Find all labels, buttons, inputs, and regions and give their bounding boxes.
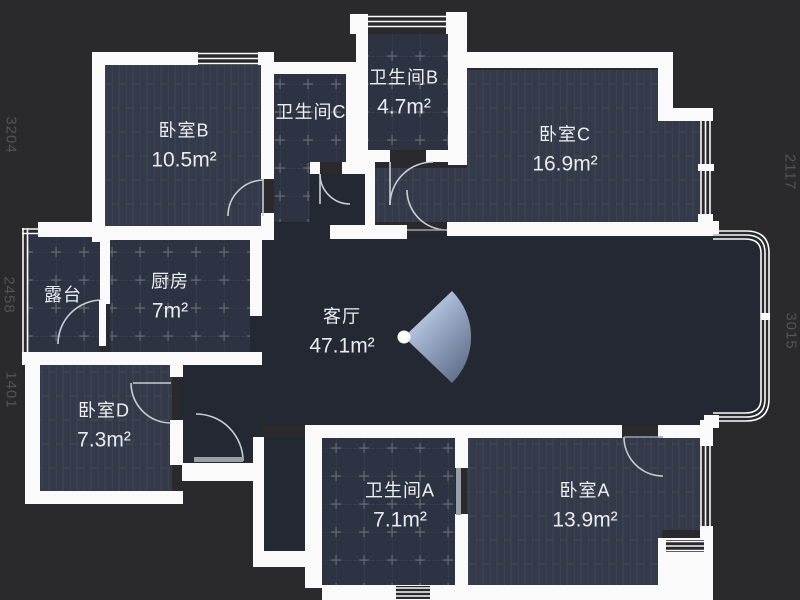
room-label-bedroom-c[interactable]: 卧室C 16.9m² bbox=[532, 126, 597, 175]
room-area: 13.9m² bbox=[552, 510, 617, 531]
dimension-left-1: 3204 bbox=[3, 116, 20, 153]
room-name: 客厅 bbox=[309, 308, 374, 326]
dimension-right-2: 3015 bbox=[783, 312, 800, 349]
room-label-bathroom-a[interactable]: 卫生间A 7.1m² bbox=[365, 482, 435, 531]
dimension-left-3: 1401 bbox=[3, 371, 20, 408]
room-name: 卧室A bbox=[552, 482, 617, 500]
bathroom-a-door bbox=[456, 468, 461, 515]
room-label-bathroom-c[interactable]: 卫生间C bbox=[276, 103, 347, 121]
bathroom-b-window bbox=[368, 17, 446, 27]
dimension-right-1: 2117 bbox=[782, 154, 799, 190]
room-label-terrace[interactable]: 露台 bbox=[44, 286, 82, 304]
room-label-living[interactable]: 客厅 47.1m² bbox=[309, 308, 374, 357]
room-name: 卫生间B bbox=[369, 69, 439, 87]
room-label-bathroom-b[interactable]: 卫生间B 4.7m² bbox=[369, 69, 439, 118]
room-area: 10.5m² bbox=[151, 150, 216, 171]
room-name: 卫生间C bbox=[276, 103, 347, 121]
room-label-bedroom-d[interactable]: 卧室D 7.3m² bbox=[77, 402, 131, 451]
floorplan-canvas: 卧室B 10.5m² 卫生间C 卫生间B 4.7m² 卧室C 16.9m² 露台… bbox=[0, 0, 800, 600]
room-label-bedroom-a[interactable]: 卧室A 13.9m² bbox=[552, 482, 617, 531]
room-label-kitchen[interactable]: 厨房 7m² bbox=[151, 273, 189, 322]
room-name: 卧室B bbox=[151, 122, 216, 140]
room-area: 7.3m² bbox=[77, 430, 131, 451]
room-name: 卫生间A bbox=[365, 482, 435, 500]
room-label-bedroom-b[interactable]: 卧室B 10.5m² bbox=[151, 122, 216, 171]
room-area: 7.1m² bbox=[365, 510, 435, 531]
room-area: 16.9m² bbox=[532, 154, 597, 175]
room-name: 露台 bbox=[44, 286, 82, 304]
room-area: 47.1m² bbox=[309, 336, 374, 357]
dimension-left-2: 2458 bbox=[1, 276, 18, 313]
room-area: 7m² bbox=[151, 301, 189, 322]
room-name: 厨房 bbox=[151, 273, 189, 291]
room-area: 4.7m² bbox=[369, 97, 439, 118]
room-name: 卧室D bbox=[77, 402, 131, 420]
room-name: 卧室C bbox=[532, 126, 597, 144]
bedroom-a-window bbox=[701, 446, 710, 526]
